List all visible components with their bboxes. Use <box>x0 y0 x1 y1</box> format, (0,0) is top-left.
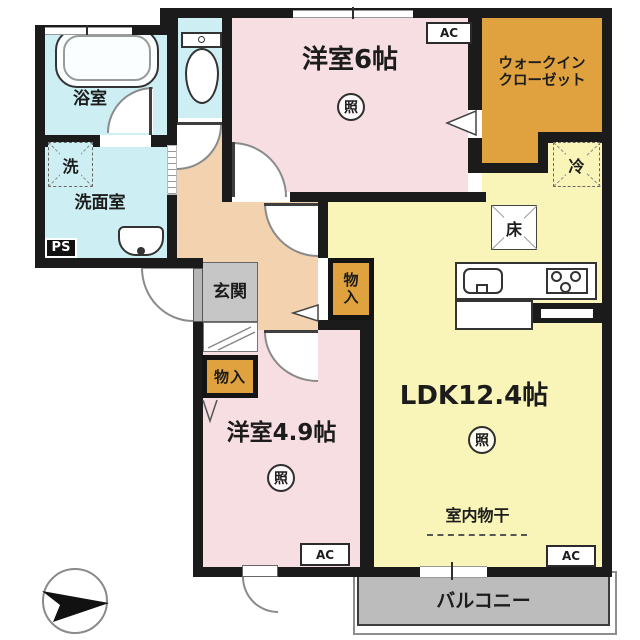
indoor-drying-label: 室内物干 <box>400 505 555 527</box>
storage-label: 物入 <box>341 272 362 306</box>
wall <box>222 8 232 202</box>
ldk-light-mark: 照 <box>468 426 496 454</box>
entrance-door-swing <box>141 268 193 322</box>
washer-space-box: 洗 <box>48 142 93 187</box>
western6-door-leaf <box>232 142 235 197</box>
fridge-mark: 冷 <box>566 153 586 177</box>
bathtub-inner <box>63 35 151 81</box>
pipe-space-box: PS <box>45 238 77 258</box>
wall <box>602 8 612 573</box>
washroom-label: 洗面室 <box>58 192 142 214</box>
wall <box>290 192 486 202</box>
wall <box>360 330 374 567</box>
ldk-door-leaf <box>264 203 318 206</box>
wall <box>278 567 420 577</box>
floor-hatch-mark: 床 <box>504 216 524 240</box>
shoe-cabinet <box>203 322 258 352</box>
wic-opening-arrow <box>444 108 478 138</box>
western49-exterior-door-leaf <box>242 565 278 577</box>
western49-exterior-door-swing <box>242 577 278 613</box>
bath-door-leaf <box>149 87 152 135</box>
western49-light-mark: 照 <box>267 464 295 492</box>
ldk-ac-box: AC <box>546 545 596 567</box>
kitchen-faucet <box>476 284 488 294</box>
washbasin-drain <box>137 247 145 255</box>
wall <box>193 567 242 577</box>
balcony-sliding-door <box>420 566 487 578</box>
hall-opening-arrow <box>290 303 320 323</box>
western49-ac-box: AC <box>300 543 350 566</box>
window-mullion <box>352 7 354 19</box>
bath-window <box>45 27 132 35</box>
washer-mark: 洗 <box>60 153 80 177</box>
entrance-label: 玄関 <box>202 262 258 322</box>
wic-label: ウォークイン クローゼット <box>482 50 602 96</box>
wall <box>538 132 548 173</box>
kitchen-hatch-slot <box>541 309 593 318</box>
storage-box-western49: 物入 <box>202 355 258 398</box>
western49-label: 洋室4.9帖 <box>203 419 360 449</box>
compass-icon <box>37 561 115 640</box>
toilet-door-leaf <box>177 122 222 125</box>
balcony-label: バルコニー <box>357 578 610 624</box>
stove-burner <box>570 271 581 282</box>
western6-light-mark: 照 <box>337 93 365 121</box>
floor-hatch-box: 床 <box>491 205 537 250</box>
storage-box-hall: 物入 <box>328 258 374 320</box>
ldk-floor <box>482 173 548 202</box>
western49-door-leaf <box>264 330 318 333</box>
wall <box>167 195 177 258</box>
indoor-drying-rail <box>427 530 527 536</box>
wall <box>35 258 203 268</box>
stove-burner <box>560 282 571 293</box>
shoe-cabinet-hatch <box>204 323 257 351</box>
western6-ac-box: AC <box>426 22 472 44</box>
toilet-flush-knob <box>198 36 205 43</box>
wall <box>487 567 612 577</box>
wall <box>318 202 328 258</box>
floor-plan: バルコニー <box>0 0 640 640</box>
washroom-sliding-door <box>167 145 177 195</box>
pipe-space-label: PS <box>52 240 71 256</box>
wall <box>318 320 374 330</box>
western6-label: 洋室6帖 <box>232 44 468 78</box>
bath-label: 浴室 <box>58 88 122 110</box>
wall <box>151 135 167 147</box>
stove-burner <box>551 271 562 282</box>
window-mullion <box>86 25 88 35</box>
storage-label: 物入 <box>214 366 246 387</box>
kitchen-counter-return <box>455 300 533 330</box>
fridge-space-box: 冷 <box>553 142 600 187</box>
ldk-label: LDK12.4帖 <box>360 380 588 414</box>
